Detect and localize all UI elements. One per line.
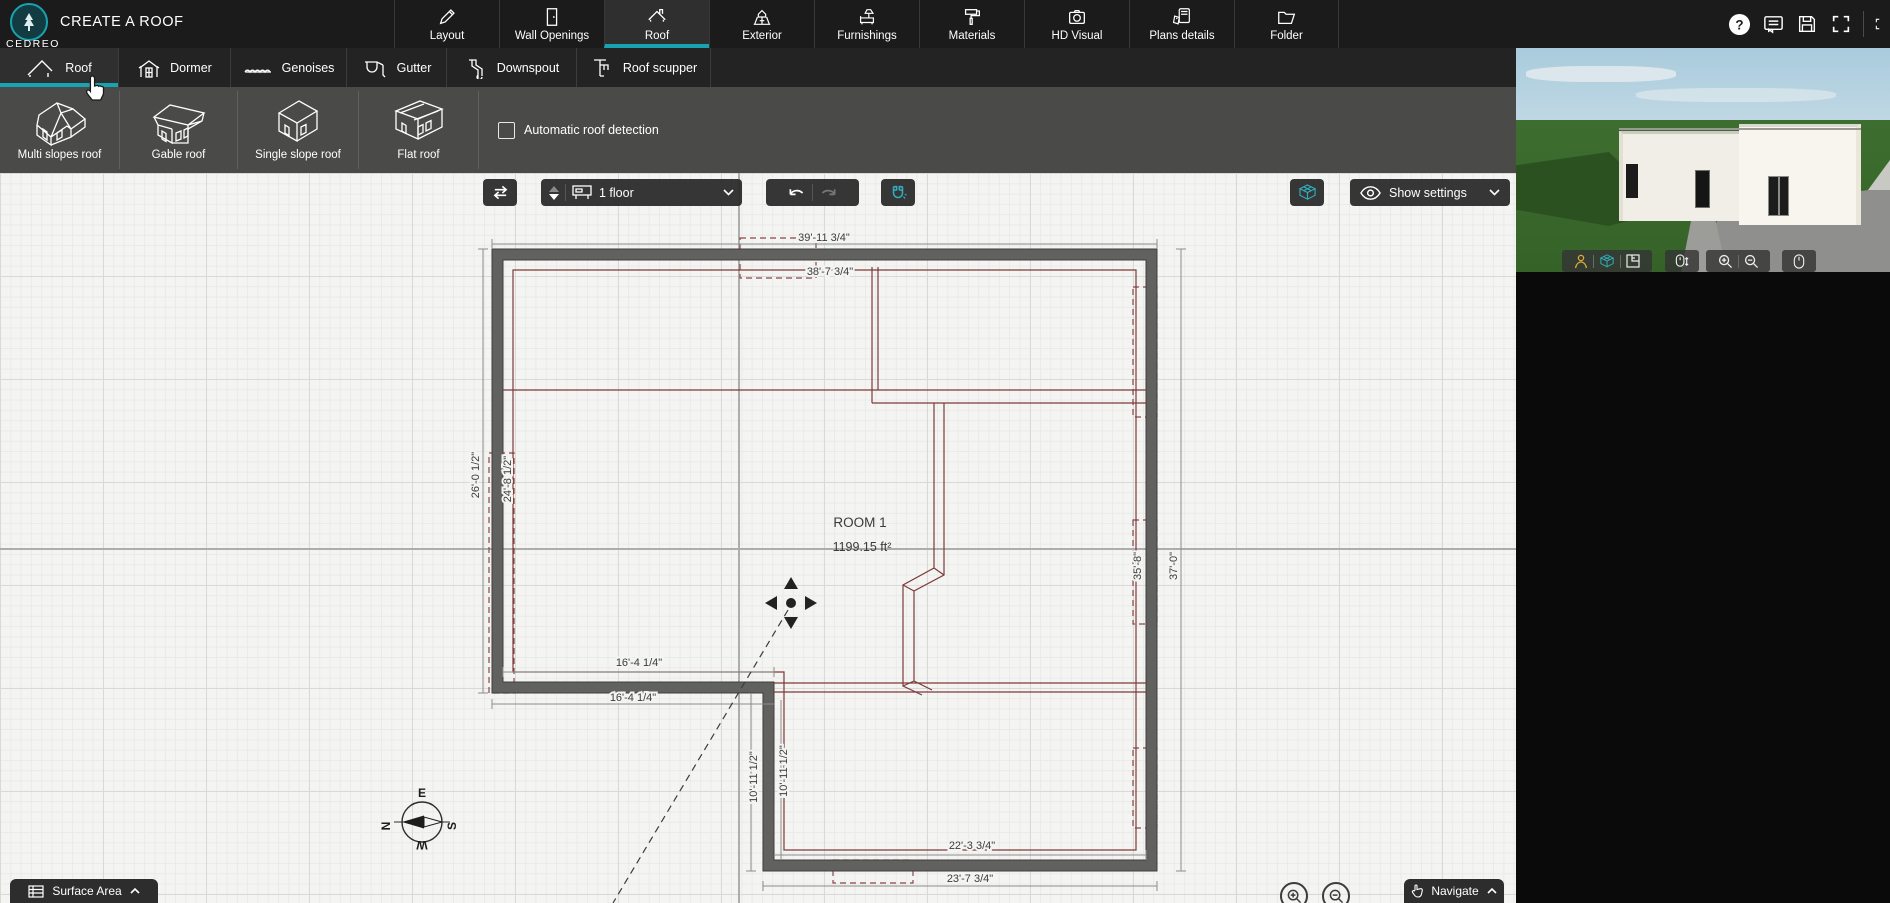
app-window: CEDREO CREATE A ROOF Layout Wall Opening… <box>0 0 1890 903</box>
preview-zoom-controls <box>1706 250 1770 272</box>
navigate-panel-toggle[interactable]: Navigate <box>1404 879 1504 903</box>
surface-area-panel-toggle[interactable]: Surface Area <box>10 879 158 903</box>
3d-cube-view-icon[interactable] <box>1599 254 1615 268</box>
tab-label: Roof <box>65 61 91 75</box>
nav-plans-details[interactable]: Plans details <box>1129 0 1234 48</box>
glass-door-mullion <box>1778 176 1780 216</box>
roof-icon <box>646 6 668 28</box>
tab-roof-scupper[interactable]: Roof scupper <box>577 48 711 87</box>
nav-materials[interactable]: Materials <box>919 0 1024 48</box>
roof-type-gable[interactable]: Gable roof <box>120 87 237 173</box>
preview-orbit-control[interactable] <box>1665 250 1699 272</box>
nav-label: Furnishings <box>837 30 896 42</box>
chevron-up-icon <box>130 888 140 894</box>
nav-label: Exterior <box>742 30 782 42</box>
sofa-lamp-icon <box>856 6 878 28</box>
room-area: 1199.15 ft² <box>833 540 892 554</box>
3d-view-toggle-button[interactable] <box>1290 179 1324 206</box>
redo-button[interactable] <box>819 185 839 200</box>
3d-preview-scene[interactable] <box>1516 48 1890 272</box>
compass: E N S W <box>379 786 459 852</box>
nav-label: Wall Openings <box>515 30 589 42</box>
compass-south: S <box>445 822 459 830</box>
floor-plan[interactable]: 39'-11 3/4" 38'-7 3/4" 26'-0 1/2" 24'-8 … <box>0 173 1516 903</box>
chevron-down-icon <box>723 189 734 196</box>
nav-exterior[interactable]: Exterior <box>709 0 814 48</box>
main-toolbar: Layout Wall Openings Roof Exterior Furni… <box>394 0 1339 48</box>
roof-type-flat[interactable]: Flat roof <box>359 87 478 173</box>
roof-type-label: Gable roof <box>152 149 206 161</box>
roof-type-label: Single slope roof <box>255 149 341 161</box>
dim-ext-bottom-inner: 22'-3 3/4" <box>949 840 995 852</box>
plan-tags-icon <box>1171 6 1193 28</box>
chevron-up-icon <box>1487 888 1497 894</box>
house-right-wing <box>1739 124 1861 225</box>
compass-north: N <box>379 822 393 831</box>
nav-furnishings[interactable]: Furnishings <box>814 0 919 48</box>
save-icon[interactable] <box>1795 12 1819 36</box>
divider <box>812 184 813 201</box>
roof-type-panel: Multi slopes roof Gable roof Single slop… <box>0 87 1516 173</box>
preview-pan-control[interactable] <box>1782 250 1816 272</box>
divider <box>1738 255 1739 268</box>
roof-type-label: Multi slopes roof <box>18 149 102 161</box>
tab-genoises[interactable]: Genoises <box>231 48 347 87</box>
floor-selector-value: 1 floor <box>599 186 634 200</box>
plan-view-icon[interactable] <box>1626 254 1640 268</box>
divider <box>478 91 479 169</box>
tab-roof[interactable]: Roof <box>0 48 119 87</box>
multi-slopes-roof-icon <box>27 95 93 147</box>
gable-roof-icon <box>146 95 212 147</box>
apps-icon[interactable] <box>1874 12 1888 36</box>
divider <box>1593 255 1594 268</box>
roof-slope-icon <box>26 57 56 79</box>
nav-layout[interactable]: Layout <box>394 0 499 48</box>
dim-top-inner: 38'-7 3/4" <box>807 266 853 278</box>
dim-left-outer: 26'-0 1/2" <box>470 452 482 498</box>
nav-label: Layout <box>430 30 465 42</box>
gutter-icon <box>362 57 388 79</box>
divider <box>1620 255 1621 268</box>
floor-plan-icon <box>572 185 592 200</box>
paint-roller-icon <box>961 6 983 28</box>
roof-parapet-line <box>1619 128 1861 130</box>
roof-type-single-slope[interactable]: Single slope roof <box>238 87 358 173</box>
tab-label: Roof scupper <box>623 61 697 75</box>
fullscreen-icon[interactable] <box>1829 12 1853 36</box>
svg-text:?: ? <box>1735 17 1743 32</box>
nav-label: HD Visual <box>1052 30 1103 42</box>
person-view-icon[interactable] <box>1574 254 1588 269</box>
dim-bottom-left-upper: 16'-4 1/4" <box>616 657 662 669</box>
dim-ext-vertical-outer: 10'-11 1/2" <box>748 751 760 803</box>
tab-label: Dormer <box>170 61 212 75</box>
nav-label: Materials <box>949 30 996 42</box>
tab-label: Downspout <box>497 61 560 75</box>
surface-table-icon <box>28 885 44 898</box>
navigate-label: Navigate <box>1431 884 1478 898</box>
downspout-icon <box>464 57 488 79</box>
checkbox-label: Automatic roof detection <box>524 123 659 137</box>
hand-icon <box>1411 884 1423 898</box>
cedreo-logo[interactable]: CEDREO <box>6 2 58 48</box>
roof-overhang-dashed-boxes <box>489 238 1157 883</box>
dim-left-inner: 24'-8 1/2" <box>502 456 514 502</box>
floor-selector[interactable]: 1 floor <box>541 179 742 206</box>
house-yard-icon <box>751 6 773 28</box>
chevron-down-icon <box>1489 189 1500 196</box>
transpose-plan-button[interactable] <box>483 179 517 206</box>
nav-roof[interactable]: Roof <box>604 0 709 48</box>
compass-west: W <box>416 838 428 852</box>
nav-hd-visual[interactable]: HD Visual <box>1024 0 1129 48</box>
zoom-in-icon[interactable] <box>1718 254 1733 269</box>
zoom-out-icon[interactable] <box>1744 254 1759 269</box>
cloud <box>1636 88 1836 102</box>
move-marker[interactable] <box>765 577 817 629</box>
tab-gutter[interactable]: Gutter <box>347 48 447 87</box>
3d-preview-panel[interactable] <box>1516 48 1890 903</box>
roof-subtabs: Roof Dormer Genoises Gutter Downspout Ro… <box>0 48 1516 87</box>
roof-edge-lines <box>503 267 1146 850</box>
undo-button[interactable] <box>786 185 806 200</box>
cedreo-logo-icon <box>10 3 48 41</box>
automatic-roof-detection-checkbox[interactable]: Automatic roof detection <box>498 87 659 173</box>
nav-wall-openings[interactable]: Wall Openings <box>499 0 604 48</box>
folder-icon <box>1276 6 1298 28</box>
nav-label: Roof <box>645 30 669 42</box>
divider <box>1863 11 1864 37</box>
magnetism-toggle-button[interactable] <box>881 179 915 206</box>
walls[interactable] <box>492 249 1157 871</box>
flat-roof-icon <box>386 95 452 147</box>
zoom-in-button[interactable] <box>1280 882 1308 903</box>
nav-folder[interactable]: Folder <box>1234 0 1339 48</box>
cloud <box>1526 66 1676 82</box>
leader-dashed-line <box>613 610 788 903</box>
nav-label: Plans details <box>1149 30 1214 42</box>
show-settings-dropdown[interactable]: Show settings <box>1350 179 1510 206</box>
dimension-lines <box>478 239 1186 891</box>
top-bar: CEDREO CREATE A ROOF Layout Wall Opening… <box>0 0 1890 48</box>
dim-top-outer: 39'-11 3/4" <box>798 232 850 244</box>
help-icon[interactable]: ? <box>1727 12 1751 36</box>
tab-downspout[interactable]: Downspout <box>447 48 577 87</box>
nav-label: Folder <box>1270 30 1303 42</box>
pencil-icon <box>436 6 458 28</box>
dim-ext-bottom-outer: 23'-7 3/4" <box>947 873 993 885</box>
cedreo-logo-text: CEDREO <box>6 38 60 50</box>
tab-label: Genoises <box>282 61 335 75</box>
plan-canvas[interactable]: 39'-11 3/4" 38'-7 3/4" 26'-0 1/2" 24'-8 … <box>0 173 1516 903</box>
comments-icon[interactable] <box>1761 12 1785 36</box>
dim-bottom-left-lower: 16'-4 1/4" <box>610 692 656 704</box>
page-title: CREATE A ROOF <box>60 14 184 30</box>
dim-right-inner: 35'-8" <box>1132 552 1144 580</box>
surface-area-label: Surface Area <box>52 884 121 898</box>
floor-stepper[interactable] <box>549 186 559 200</box>
undo-redo-group <box>766 179 859 206</box>
eye-icon <box>1360 186 1381 200</box>
dimension-labels: 39'-11 3/4" 38'-7 3/4" 26'-0 1/2" 24'-8 … <box>470 232 1180 885</box>
roof-type-multi-slopes[interactable]: Multi slopes roof <box>0 87 119 173</box>
compass-east: E <box>418 786 426 800</box>
tab-dormer[interactable]: Dormer <box>119 48 231 87</box>
divider <box>565 184 566 201</box>
room-name: ROOM 1 <box>833 515 886 530</box>
show-settings-label: Show settings <box>1389 186 1467 200</box>
dim-ext-vertical-inner: 10'-11 1/2" <box>778 745 790 797</box>
checkbox-unchecked[interactable] <box>498 122 515 139</box>
house-door <box>1695 170 1710 208</box>
dim-right-outer: 37'-0" <box>1168 552 1180 580</box>
roof-scupper-icon <box>590 57 614 79</box>
preview-view-modes <box>1562 250 1652 272</box>
zoom-out-button[interactable] <box>1322 882 1350 903</box>
single-slope-roof-icon <box>265 95 331 147</box>
topbar-right-icons: ? <box>1727 0 1888 48</box>
genoises-icon <box>243 60 273 76</box>
room-label: ROOM 1 1199.15 ft² <box>833 515 892 554</box>
camera-icon <box>1066 6 1088 28</box>
tab-label: Gutter <box>397 61 432 75</box>
door-icon <box>541 6 563 28</box>
roof-type-label: Flat roof <box>397 149 439 161</box>
dormer-icon <box>137 57 161 79</box>
house-window <box>1626 164 1638 198</box>
